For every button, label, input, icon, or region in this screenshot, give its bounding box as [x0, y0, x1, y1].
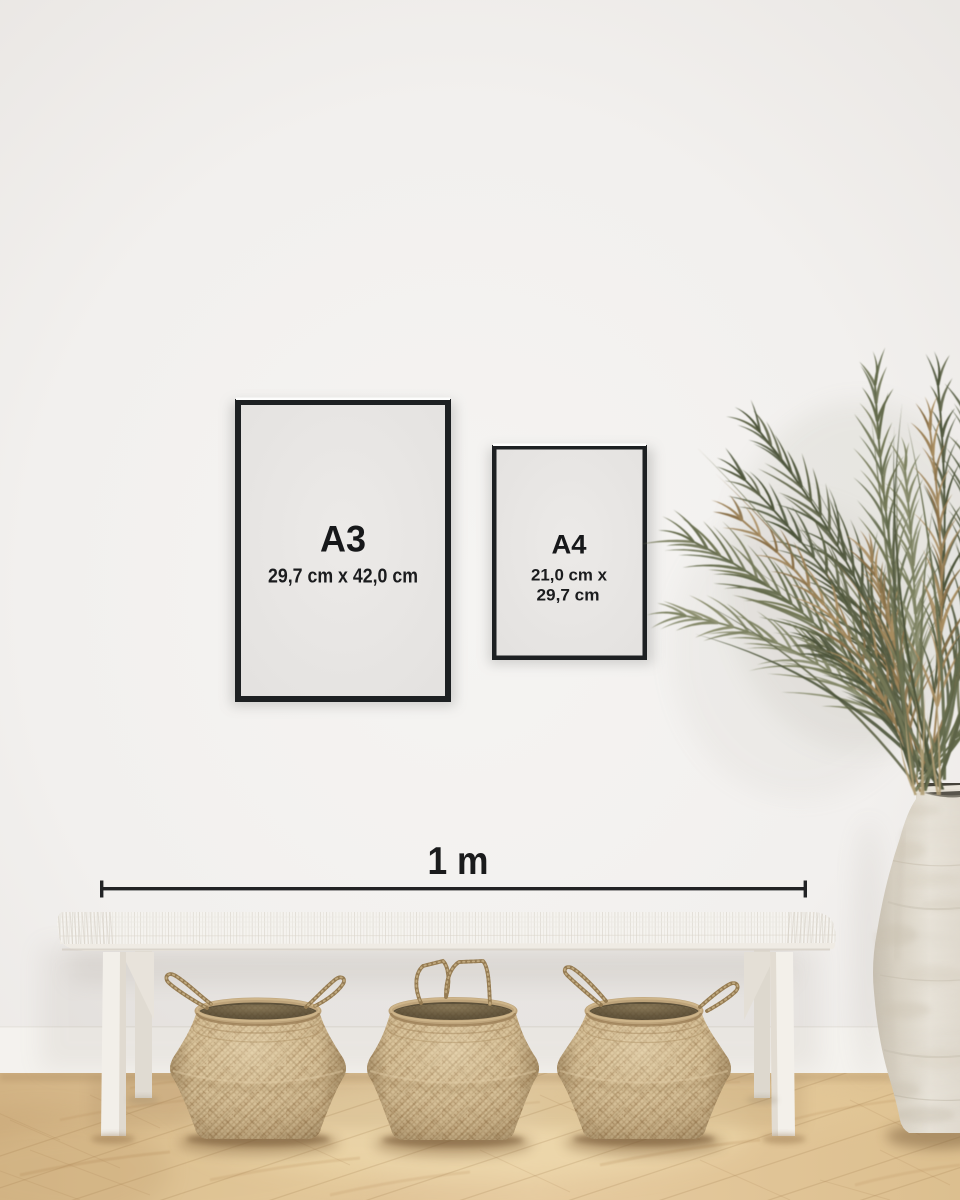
svg-text:A4: A4 [552, 530, 587, 560]
svg-text:21,0 cm x: 21,0 cm x [531, 566, 608, 585]
svg-text:A3: A3 [320, 519, 366, 560]
svg-text:1 m: 1 m [428, 840, 489, 883]
svg-text:29,7 cm: 29,7 cm [537, 586, 600, 605]
svg-text:29,7 cm x 42,0 cm: 29,7 cm x 42,0 cm [268, 565, 418, 588]
